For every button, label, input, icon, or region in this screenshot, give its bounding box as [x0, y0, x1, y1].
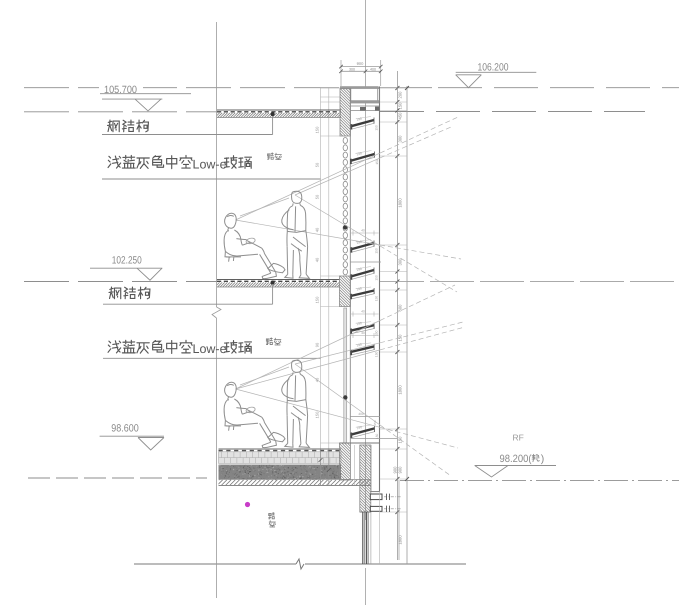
svg-text:1800: 1800 [398, 535, 403, 545]
svg-text:900: 900 [398, 466, 403, 474]
svg-text:150: 150 [315, 126, 320, 133]
svg-text:40: 40 [361, 331, 365, 335]
svg-text:300: 300 [398, 135, 403, 143]
svg-text:150: 150 [315, 411, 320, 418]
svg-text:150: 150 [375, 275, 379, 281]
svg-text:150: 150 [375, 330, 379, 336]
svg-text:40: 40 [315, 227, 320, 232]
svg-text:150: 150 [375, 125, 379, 131]
svg-text:1800: 1800 [398, 385, 403, 395]
svg-text:102.250: 102.250 [112, 254, 142, 266]
svg-text:40: 40 [315, 257, 320, 262]
svg-text:300: 300 [349, 67, 355, 71]
svg-text:98.200(: 98.200( [500, 453, 532, 465]
svg-text:): ) [541, 453, 545, 465]
svg-text:150: 150 [375, 296, 379, 302]
svg-text:40: 40 [361, 229, 365, 233]
svg-text:Low-e: Low-e [193, 157, 227, 171]
svg-text:50: 50 [315, 194, 320, 199]
svg-text:90: 90 [315, 342, 320, 347]
svg-text:150: 150 [398, 102, 403, 110]
svg-text:50: 50 [315, 162, 320, 167]
svg-text:150: 150 [315, 296, 320, 303]
svg-text:106.200: 106.200 [478, 61, 509, 73]
svg-text:RF: RF [513, 433, 524, 443]
svg-text:900: 900 [357, 61, 364, 66]
svg-text:200: 200 [398, 91, 403, 99]
svg-text:1800: 1800 [398, 198, 403, 208]
svg-text:98.600: 98.600 [111, 422, 139, 434]
svg-text:450: 450 [398, 112, 403, 120]
svg-text:150: 150 [375, 248, 379, 254]
svg-text:400: 400 [370, 67, 376, 71]
svg-text:900: 900 [392, 466, 397, 474]
svg-text:Low-e: Low-e [193, 342, 227, 356]
svg-text:40: 40 [361, 310, 365, 314]
svg-text:150: 150 [375, 352, 379, 358]
